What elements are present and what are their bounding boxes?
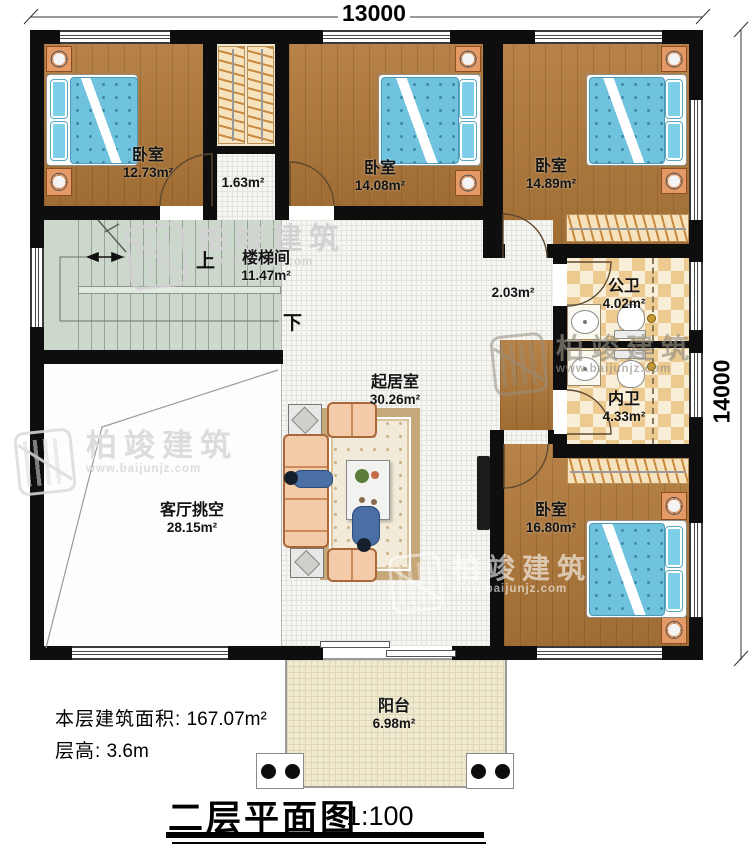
window-right-private-bath	[689, 353, 703, 417]
table-decor	[371, 499, 377, 505]
nightstand	[661, 168, 687, 194]
pillow	[51, 122, 67, 160]
sofa-main	[283, 434, 329, 548]
shower-screen-public	[652, 258, 654, 341]
balcony-sliding-door-left	[320, 641, 390, 648]
dimension-top-label: 13000	[338, 0, 410, 27]
dimension-right-label: 14000	[708, 356, 735, 428]
wall-bedrooms-south-a	[30, 206, 160, 220]
stair-up-label: 上	[196, 246, 215, 273]
public-bath-sink	[571, 310, 599, 334]
floor-plan: 13000 14000 柏竣建筑 www.baijunjz.com 柏竣建筑 w…	[0, 0, 750, 853]
floor-area-value: 167.07m²	[187, 709, 267, 730]
end-table	[290, 548, 324, 578]
bed-top-right	[586, 74, 687, 166]
person-lying	[293, 470, 333, 488]
wardrobe	[567, 458, 689, 484]
wall-bath-divider	[567, 341, 689, 348]
window-top-middle	[323, 30, 450, 44]
column-dot	[495, 764, 510, 779]
window-right-bedroom-tr	[689, 100, 703, 220]
bed-bottom-right	[586, 520, 687, 618]
room-label-private-bathroom: 内卫 4.33m²	[603, 391, 646, 425]
nightstand	[455, 46, 481, 72]
wardrobe	[218, 46, 245, 144]
room-label-bedroom-top-middle: 卧室 14.08m²	[355, 160, 405, 194]
room-label-balcony: 阳台 6.98m²	[373, 698, 416, 732]
private-bath-toilet	[617, 360, 645, 388]
wall-left	[30, 30, 44, 660]
room-label-bedroom-top-left: 卧室 12.73m²	[123, 147, 173, 181]
quilt	[589, 523, 665, 616]
table-decor	[371, 471, 379, 479]
window-right-bedroom-br	[689, 523, 703, 617]
column-dot	[285, 764, 300, 779]
wall-bath-west-a	[553, 258, 567, 264]
column-base-right	[466, 753, 514, 789]
person-lying-head	[284, 471, 298, 485]
stair-down-label: 下	[283, 308, 302, 335]
table-plant	[355, 469, 369, 483]
room-label-bedroom-top-right: 卧室 14.89m²	[526, 158, 576, 192]
wall-bath-south	[553, 444, 703, 458]
quilt	[381, 77, 459, 164]
stairs-lower-flight	[78, 294, 281, 350]
wall-bath-west-b	[553, 306, 567, 390]
title-underline-thin	[172, 842, 486, 844]
window-top-left	[60, 30, 170, 44]
pillow	[666, 527, 682, 567]
nightstand	[661, 616, 687, 644]
table-decor	[359, 497, 365, 503]
window-bottom-bedroom-br	[537, 646, 662, 660]
wall-closet-east	[275, 44, 289, 220]
window-left-stairs	[30, 248, 44, 327]
column-dot	[261, 764, 276, 779]
storey-height-label: 层高:	[55, 741, 101, 762]
pillow	[666, 571, 682, 611]
room-label-living-void: 客厅挑空 28.15m²	[160, 502, 224, 536]
room-label-corridor: 2.03m²	[492, 284, 535, 301]
room-label-stair-hall: 楼梯间 11.47m²	[241, 250, 291, 284]
wall-bedroom-br-west	[490, 444, 504, 646]
wall-closet-west	[203, 44, 217, 220]
stairs-railing	[78, 286, 281, 294]
wardrobe	[247, 46, 274, 144]
window-top-right	[535, 30, 662, 44]
storey-height-value: 3.6m	[107, 741, 149, 762]
balcony-sliding-door-right	[386, 650, 456, 657]
private-bath-sink	[571, 357, 599, 381]
floor-area-note: 本层建筑面积: 167.07m²	[55, 704, 267, 731]
room-label-public-bathroom: 公卫 4.02m²	[603, 278, 646, 312]
pillow	[460, 122, 476, 160]
wall-stairs-south	[30, 350, 283, 364]
public-bath-toilet-tank	[614, 330, 646, 339]
wall-bedroom-tr-south-b	[547, 244, 689, 258]
column-dot	[471, 764, 486, 779]
wardrobe	[566, 214, 689, 242]
end-table	[288, 404, 322, 436]
pillow	[460, 80, 476, 118]
plan-scale: 1:100	[346, 801, 414, 832]
wall-bedrooms-south-b	[334, 206, 483, 220]
bed-top-middle	[378, 74, 481, 166]
nightstand	[661, 46, 687, 72]
room-label-living-room: 起居室 30.26m²	[370, 374, 420, 408]
nightstand	[46, 46, 72, 72]
floor-hallway-strip	[500, 340, 553, 430]
armchair-bottom	[327, 548, 377, 582]
wall-bedroom-br-north-b	[548, 430, 554, 444]
window-right-public-bath	[689, 262, 703, 330]
column-base-left	[256, 753, 304, 789]
tv	[477, 456, 490, 530]
window-bottom-void	[72, 646, 228, 660]
wall-bedroom-br-north-a	[490, 430, 504, 444]
private-bath-toilet-tank	[614, 350, 646, 359]
room-label-inner-hall: 1.63m²	[222, 174, 265, 191]
nightstand	[46, 168, 72, 196]
storey-height-note: 层高: 3.6m	[55, 736, 149, 763]
nightstand	[661, 492, 687, 520]
quilt	[589, 77, 665, 164]
shower-knob	[647, 362, 656, 371]
floor-area-label: 本层建筑面积:	[55, 709, 181, 730]
nightstand	[455, 170, 481, 196]
wall-bedroom-tr-south-a	[497, 244, 505, 258]
pillow	[666, 80, 682, 118]
wall-closet-bottom	[217, 146, 275, 154]
title-underline-thick	[166, 832, 484, 838]
pillow	[666, 122, 682, 160]
person-sitting-head	[357, 538, 371, 552]
shower-knob	[647, 314, 656, 323]
wall-bedroom-tr-west	[483, 44, 503, 258]
room-label-bedroom-bottom-right: 卧室 16.80m²	[526, 502, 576, 536]
pillow	[51, 80, 67, 118]
